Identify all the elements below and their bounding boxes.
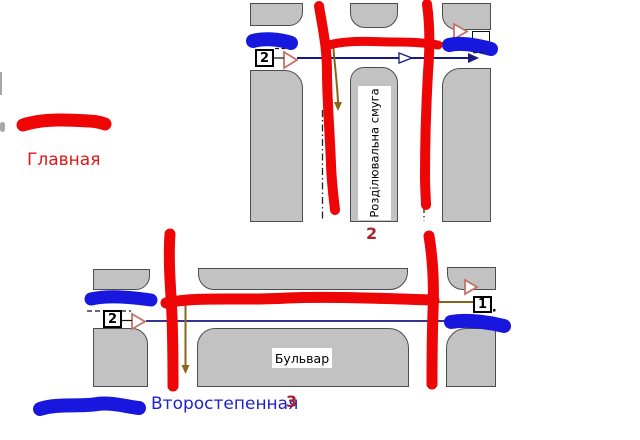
sign-plate-top-right — [472, 31, 490, 45]
boulevard-label: Бульвар — [275, 351, 329, 366]
route-mid-arrow-icon — [399, 53, 412, 63]
road-priority-diagram: Розділювальна смуга Бульвар — [0, 0, 640, 440]
main-road-mark — [325, 41, 438, 46]
badge-number: 2 — [108, 313, 117, 326]
road-block-top-right-lower — [442, 68, 491, 222]
median-strip-label-box: Розділювальна смуга — [358, 86, 391, 220]
sign-badge-top-left: 2 — [255, 49, 274, 67]
road-block-bottom-left-lower — [93, 328, 148, 387]
pointer-line-down-top — [333, 42, 338, 102]
secondary-road-mark — [253, 39, 291, 43]
main-road-mark — [425, 4, 429, 205]
yield-triangle-icon — [284, 52, 297, 68]
badge-number: 1 — [478, 298, 487, 311]
sign-badge-bottom-left: 2 — [103, 310, 122, 328]
scan-artifact — [0, 122, 5, 132]
road-block-top-left-lower — [250, 70, 303, 222]
scan-artifact — [0, 72, 2, 95]
figure-number-top: 2 — [366, 224, 377, 243]
main-road-mark — [429, 236, 433, 384]
boulevard-label-box: Бульвар — [272, 348, 332, 368]
sign-badge-bottom-right: 1 — [473, 296, 492, 313]
road-block-bottom-right-upper — [447, 267, 496, 290]
road-block-top-median-upper — [350, 3, 398, 28]
median-strip-label: Розділювальна смуга — [368, 88, 382, 217]
main-road-mark — [169, 234, 173, 386]
figure-number-bottom: 3 — [286, 392, 297, 411]
legend-main-label: Главная — [27, 150, 100, 170]
pointer-arrowhead-icon — [334, 102, 342, 111]
road-block-bottom-middle-upper — [198, 268, 408, 290]
main-road-mark — [319, 6, 335, 210]
road-block-bottom-right-lower — [446, 328, 496, 387]
legend-main-swatch — [23, 120, 105, 125]
route-arrowhead-icon — [468, 53, 479, 63]
secondary-road-mark — [451, 321, 504, 326]
badge-number: 2 — [260, 52, 269, 65]
pointer-arrowhead-icon — [182, 365, 190, 374]
road-block-top-left-upper — [250, 3, 303, 26]
legend-secondary-label: Второстепенная — [151, 394, 298, 414]
secondary-road-mark — [91, 297, 151, 300]
main-road-mark — [166, 297, 434, 303]
road-block-top-right-upper — [442, 3, 491, 30]
badge-dot — [493, 309, 496, 312]
yield-triangle-icon — [132, 314, 145, 329]
legend-secondary-swatch — [40, 404, 139, 409]
road-block-bottom-left-upper — [93, 269, 150, 290]
